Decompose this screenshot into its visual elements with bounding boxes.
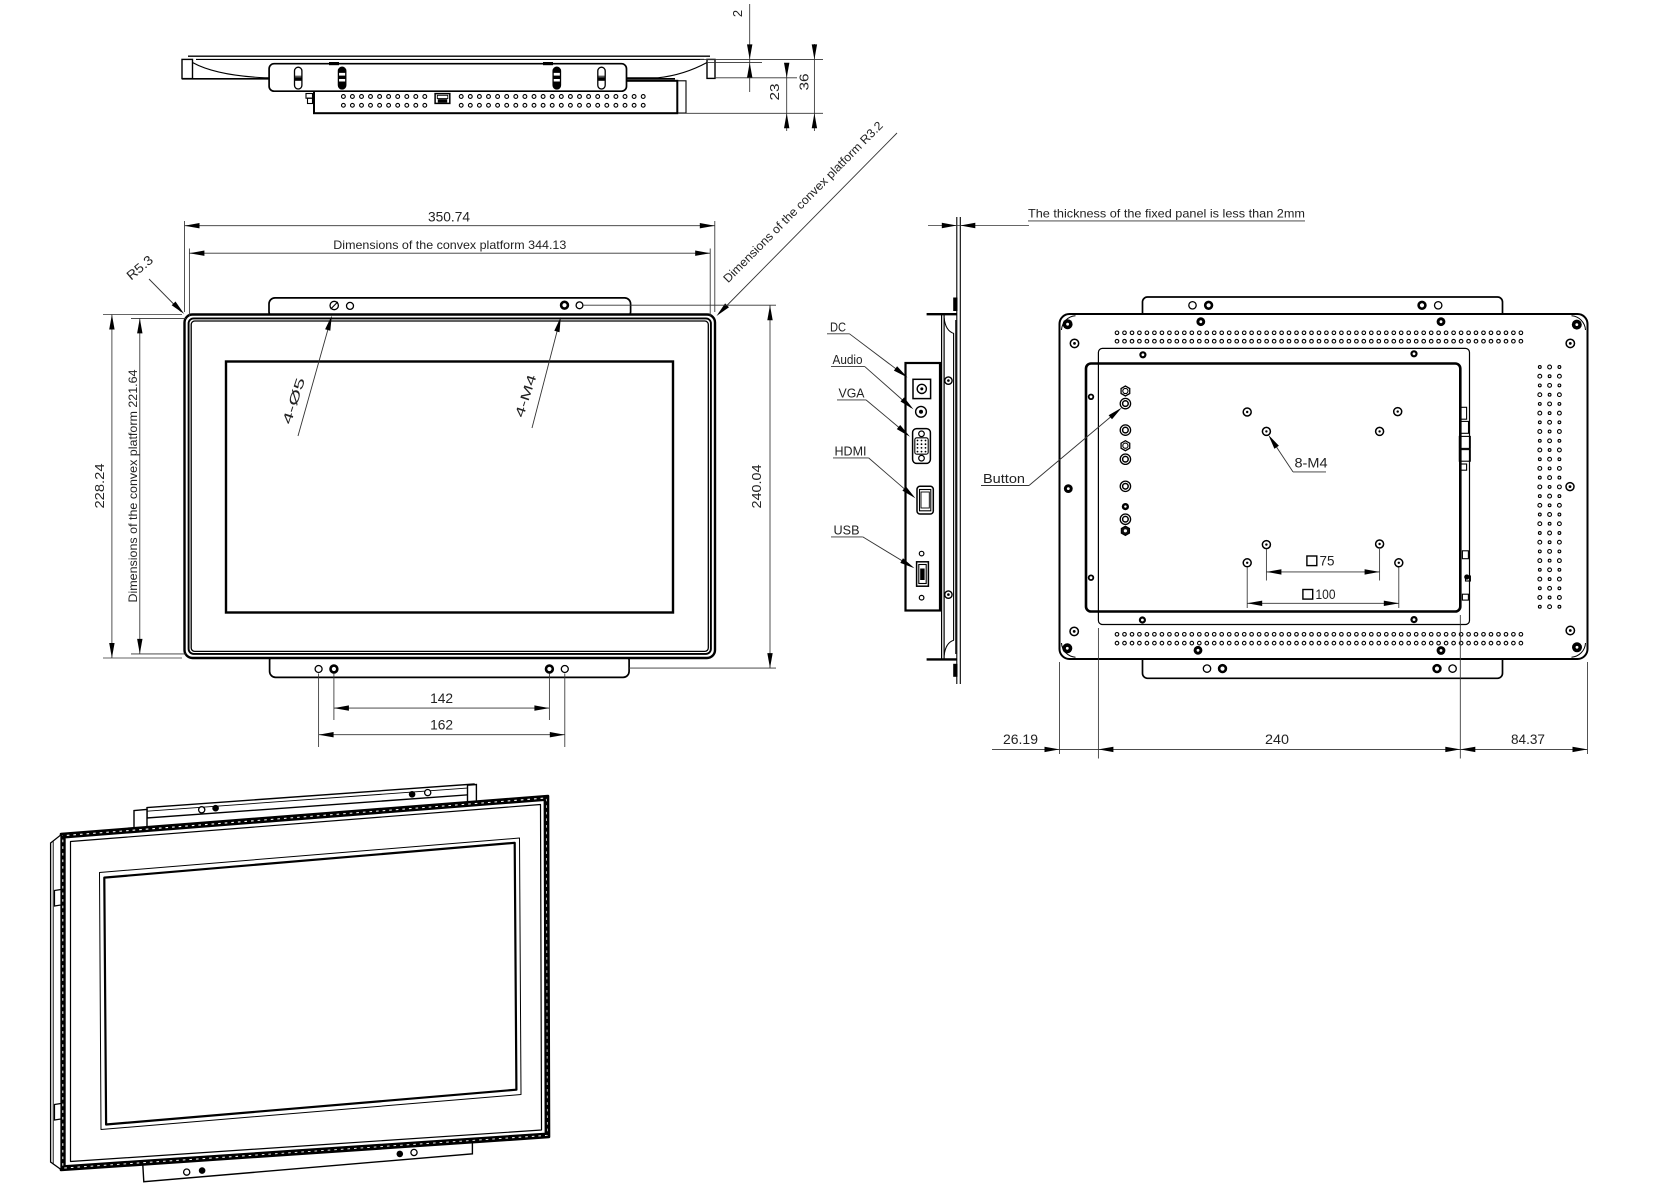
svg-text:240.04: 240.04 [749, 465, 764, 509]
svg-text:75: 75 [1320, 554, 1335, 569]
svg-text:8-M4: 8-M4 [1295, 456, 1329, 471]
svg-text:Audio: Audio [833, 352, 863, 367]
svg-text:142: 142 [430, 691, 453, 706]
svg-text:HDMI: HDMI [835, 444, 867, 459]
svg-text:The thickness of the fixed pan: The thickness of the fixed panel is less… [1028, 207, 1305, 221]
svg-text:162: 162 [430, 718, 453, 733]
svg-text:Dimensions of the convex platf: Dimensions of the convex platform 344.13 [333, 238, 566, 252]
svg-text:240: 240 [1265, 732, 1289, 747]
svg-text:26.19: 26.19 [1003, 732, 1038, 747]
svg-text:36: 36 [797, 74, 812, 91]
svg-text:Button: Button [983, 471, 1025, 486]
svg-text:100: 100 [1316, 587, 1336, 602]
svg-text:350.74: 350.74 [428, 210, 470, 225]
svg-text:228.24: 228.24 [92, 464, 107, 509]
svg-text:DC: DC [830, 320, 846, 335]
svg-text:VGA: VGA [839, 386, 865, 401]
svg-text:84.37: 84.37 [1511, 732, 1545, 747]
svg-text:2: 2 [730, 10, 745, 17]
svg-text:23: 23 [767, 84, 782, 101]
svg-text:Dimensions of the convex platf: Dimensions of the convex platform 221.64 [126, 369, 140, 602]
svg-text:USB: USB [834, 523, 860, 538]
